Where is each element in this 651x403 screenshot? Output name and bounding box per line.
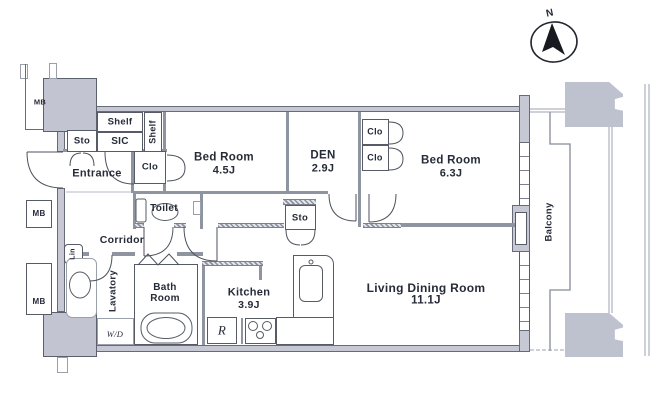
wall-right-bottom [519, 330, 530, 352]
bedroom2-door-arc [369, 194, 396, 222]
kitchen-name: Kitchen [228, 288, 270, 299]
clo-br2-door-arcs [389, 122, 403, 170]
fridge-label: R [218, 324, 226, 337]
washer-dryer-label: W/D [107, 330, 123, 339]
bedroom2-name: Bed Room [421, 155, 481, 167]
wall-br2-bottom [400, 223, 518, 227]
balcony-top-connector [530, 109, 565, 112]
den-size: 2.9J [312, 164, 335, 175]
wall-stub-c [57, 357, 68, 373]
window-bedroom2 [519, 143, 530, 205]
wall-hatch-toilet-b [174, 223, 186, 228]
living-size: 11.1J [411, 295, 441, 307]
lin-label: Lin [70, 248, 77, 259]
bathroom-box [134, 264, 198, 345]
mb-bottom-label: MB [32, 298, 45, 306]
clo-lower-label: Clo [367, 154, 382, 163]
clo-entrance-door-arcs [167, 155, 185, 181]
mb-middle-label: MB [32, 210, 45, 218]
pillar-bottom-right [565, 313, 623, 357]
compass-n-label: N [545, 8, 554, 19]
wall-right-top [519, 95, 530, 143]
north-arrow-icon [542, 23, 565, 55]
wall-hatch-corridor [218, 223, 284, 228]
clo-entrance-label: Clo [142, 162, 158, 172]
wall-bottom [95, 345, 530, 352]
compass-circle [529, 20, 579, 65]
wall-hatch-toilet-a [135, 223, 144, 228]
entrance-door-arc [27, 152, 63, 188]
bathroom-line1: Bath [153, 283, 176, 293]
toilet-paper-holder [193, 201, 201, 215]
sic-label: SIC [111, 137, 129, 147]
mullion-shutter-box [515, 212, 527, 245]
balcony-railing-outer [645, 84, 649, 356]
pillar-top-right [565, 82, 623, 127]
wall-den-br2 [358, 112, 361, 227]
vanity-counter [66, 258, 97, 318]
den-door-arc [329, 194, 356, 221]
wall-br1-den [286, 112, 289, 193]
wall-hall-bath [177, 252, 203, 256]
pillar-bottom-left [43, 312, 97, 357]
kitchen-size: 3.9J [238, 300, 260, 311]
pillar-top-left [43, 78, 97, 132]
wall-kitchen-left [202, 261, 205, 345]
balcony-label: Balcony [544, 202, 554, 241]
clo-upper-label: Clo [367, 128, 382, 137]
north-compass [529, 20, 579, 65]
toilet-door-arc [144, 227, 173, 256]
kitchen-sink [299, 265, 323, 302]
wall-br1-bottom [135, 191, 328, 194]
wall-stove-divider [241, 318, 243, 344]
wall-stub-b [49, 63, 57, 79]
wall-hatch-br2-door [363, 223, 401, 228]
shelf-side-label: Shelf [149, 120, 158, 144]
wall-lavatory-b [112, 252, 135, 256]
bedroom1-size: 4.5J [213, 166, 236, 177]
sto-entrance-label: Sto [74, 136, 90, 146]
floor-plan: N MB MB MB Shelf SIC Shelf Sto Entrance … [0, 0, 651, 403]
den-name: DEN [310, 150, 335, 162]
toilet-tank-icon [136, 199, 146, 222]
corridor-label: Corridor [100, 235, 144, 246]
bedroom1-name: Bed Room [194, 152, 254, 164]
entrance-label: Entrance [72, 169, 121, 180]
sto-hall-door-arcs [286, 230, 315, 245]
wall-hatch-kitchen [202, 261, 263, 266]
stove-box [245, 318, 276, 344]
bathroom-line2: Room [150, 294, 180, 304]
kitchen-counter-bottom [276, 317, 334, 345]
window-living [519, 252, 530, 330]
balcony-railing-inner [609, 127, 612, 313]
mb-bottom-box [26, 263, 52, 315]
lavatory-label: Lavatory [108, 270, 118, 312]
living-name: Living Dining Room [367, 282, 486, 294]
toilet-label: Toilet [150, 204, 178, 214]
mb-top-label: MB [34, 98, 46, 106]
sto-hall-label: Sto [292, 213, 308, 223]
shelf-top-label: Shelf [108, 117, 133, 127]
sto-entrance-door-arcs [70, 153, 94, 166]
bedroom2-size: 6.3J [440, 169, 463, 180]
